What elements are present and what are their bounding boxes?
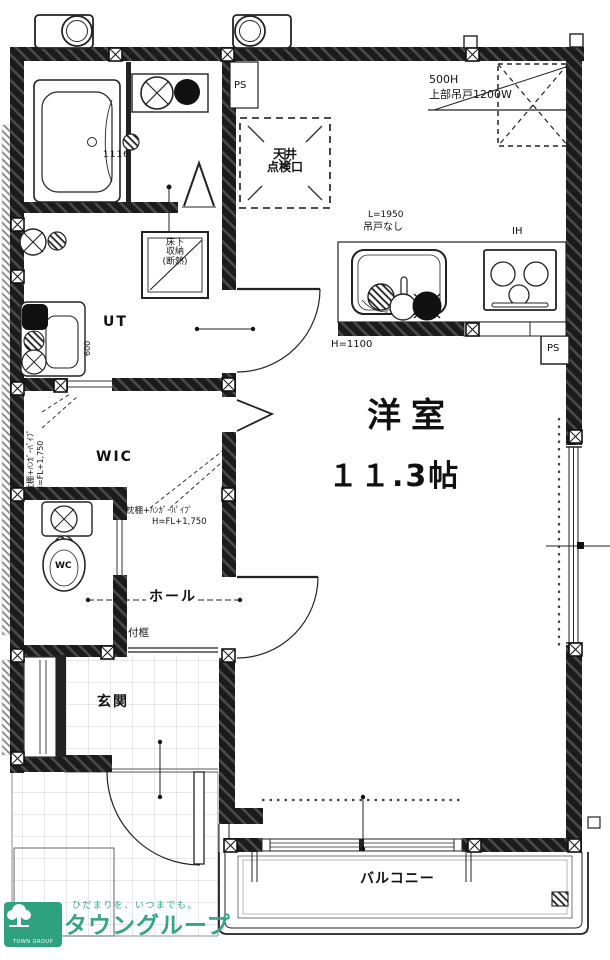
kitchen-sink (352, 250, 446, 320)
main-room-size: １１.3帖 (328, 460, 460, 493)
floor-storage-label: 床下 収納 (断熱) (142, 239, 208, 267)
wic-shelf-note-vertical: 枕棚+ﾊﾝｶﾞｰﾊﾟｲﾌﾟ H=FL+1,750 (26, 396, 45, 492)
wic-label: WIC (96, 450, 133, 465)
closet-note-line1: 枕棚+ﾊﾝｶﾞｰﾊﾟｲﾌﾟ (126, 507, 193, 516)
bath-size-label: 1116 (103, 151, 130, 161)
ceiling-hatch-label: 天井 点検口 (240, 148, 330, 174)
cabinet-label: 上部吊戸1200W (429, 89, 512, 101)
ih-label: IH (512, 226, 522, 237)
logo-tagline: ひだまりを、いつまでも。 (72, 902, 198, 912)
cabinet-height-label: 500H (429, 74, 458, 86)
vanity-width-label: 600 (84, 341, 93, 356)
logo-name: タウングループ (64, 914, 231, 939)
window-leader-mark (577, 542, 584, 549)
vanity (21, 302, 85, 376)
wc-label: WC (55, 562, 72, 572)
balcony-label: バルコニー (360, 872, 435, 887)
floorplan-drawing (0, 0, 610, 960)
counter-height-label: H=1100 (331, 339, 372, 350)
kitchen-counter (338, 242, 566, 336)
bath-faucet (123, 134, 139, 150)
town-group-logo: TOWN GROUP (4, 902, 62, 947)
balcony-drain (552, 892, 568, 906)
closet-note-line2: H=FL+1,750 (152, 518, 207, 527)
ih-cooktop (484, 250, 556, 310)
ps-kitchen-label: PS (547, 343, 559, 354)
tree-icon (4, 902, 34, 930)
floorplan: PS 天井 点検口 500H 上部吊戸1200W L=1950 吊戸なし IH … (0, 0, 610, 960)
entrance-step-label: 付框 (128, 628, 149, 640)
exterior-hatch (2, 125, 10, 755)
entrance-label: 玄関 (97, 695, 129, 710)
utility-label: UT (103, 315, 128, 330)
bathtub (34, 80, 120, 202)
washer-pan (132, 74, 208, 112)
kitchen-no-door-label: 吊戸なし (363, 222, 403, 233)
shoe-closet (24, 655, 66, 757)
main-room-name: 洋室 (367, 398, 455, 435)
ps-top-label: PS (234, 80, 246, 91)
hall-label: ホール (149, 590, 197, 605)
logo-sub-text: TOWN GROUP (13, 939, 53, 945)
kitchen-length-label: L=1950 (368, 211, 403, 221)
right-margin-mark (588, 817, 600, 828)
